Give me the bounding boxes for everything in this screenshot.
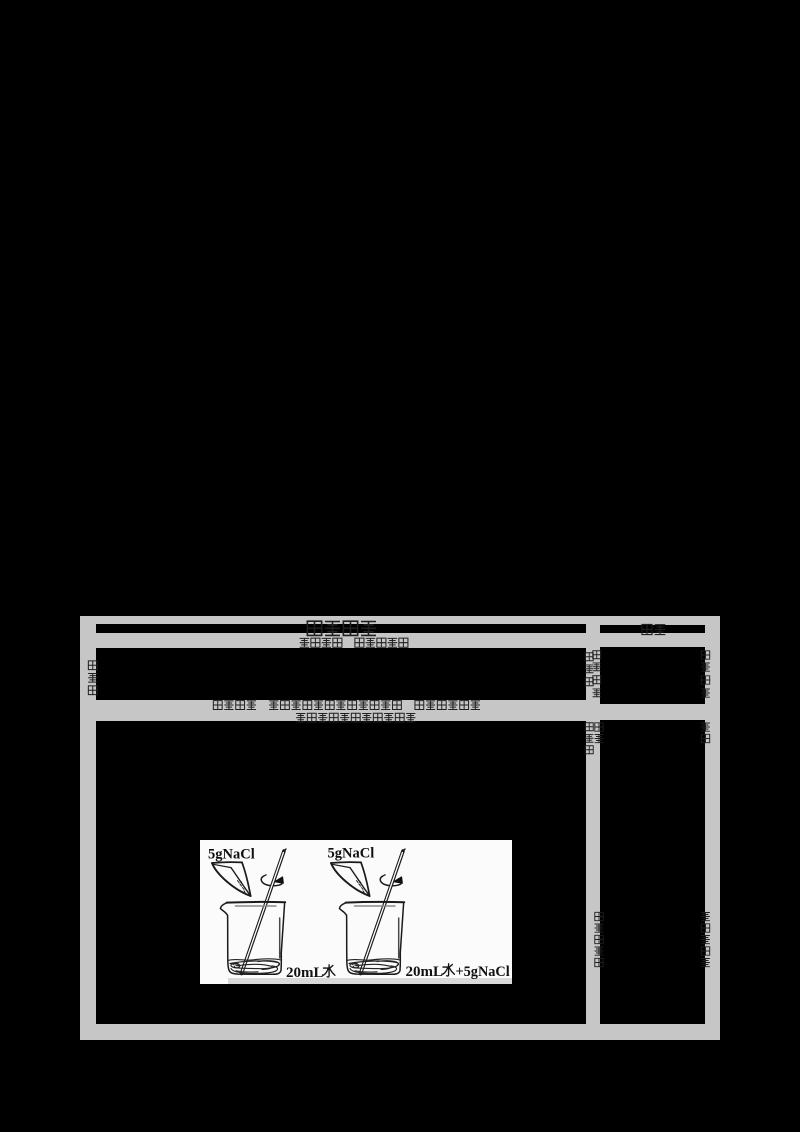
- svg-text:5gNaCl: 5gNaCl: [208, 847, 255, 863]
- svg-text:20mL: 20mL: [286, 965, 324, 981]
- svg-text:+5gNaCl: +5gNaCl: [456, 964, 510, 980]
- svg-text:20mL: 20mL: [406, 964, 444, 980]
- svg-text:5gNaCl: 5gNaCl: [328, 846, 375, 862]
